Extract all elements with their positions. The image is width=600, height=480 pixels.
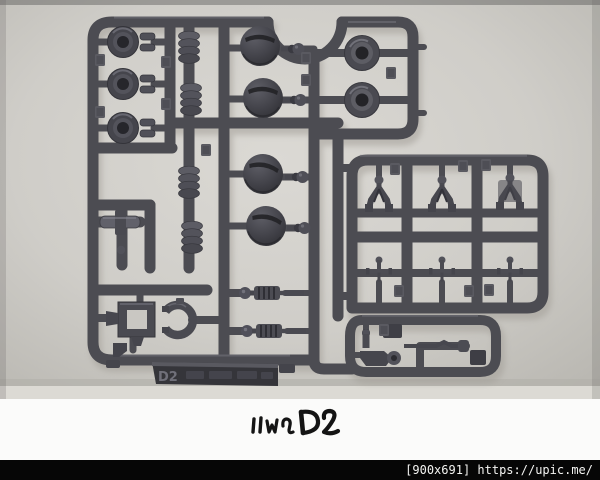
watermark-bar: [900x691] https://upic.me/ [0, 460, 600, 480]
watermark-text: [900x691] https://upic.me/ [405, 463, 593, 477]
page: D2 แผง D2 [0, 0, 600, 480]
sprue-photo-svg: D2 [0, 0, 600, 399]
caption-strip: แผง D2 [0, 399, 600, 460]
sprue-photo: D2 [0, 0, 600, 399]
caption-handwriting [0, 399, 600, 460]
